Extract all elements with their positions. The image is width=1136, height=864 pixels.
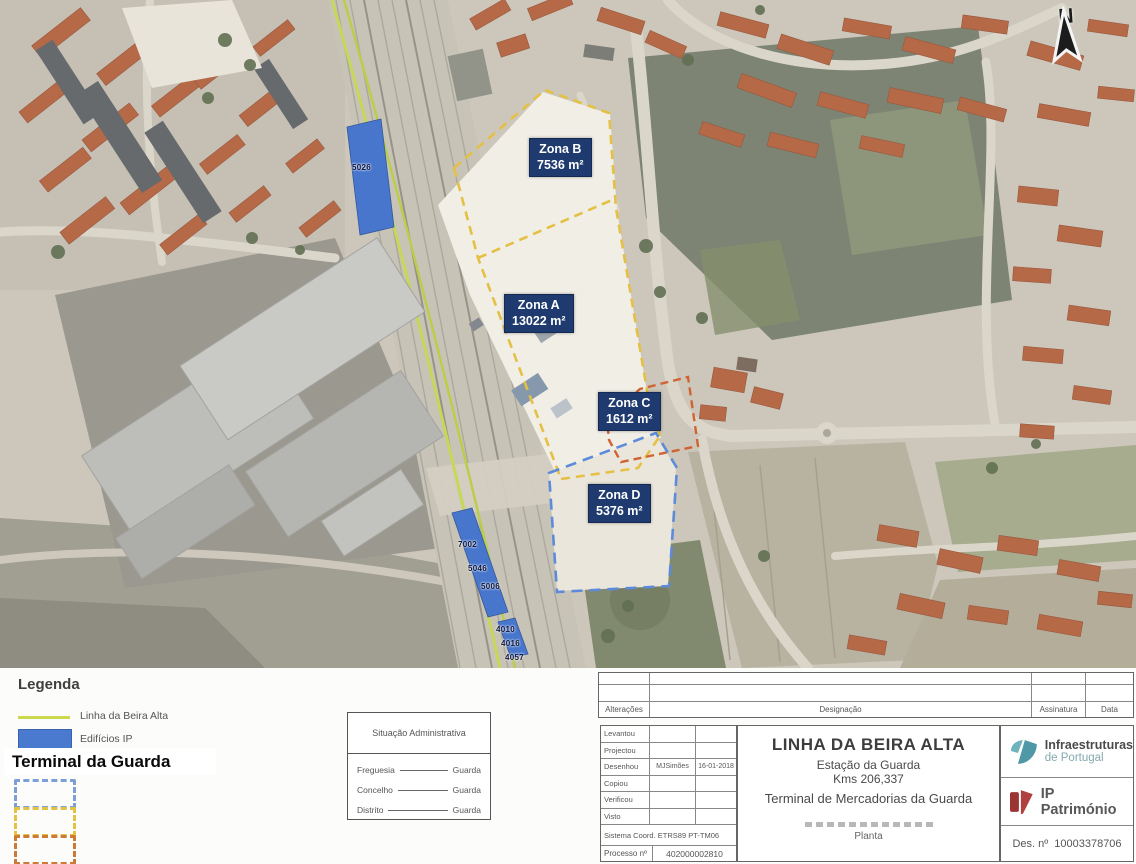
legend-item-buildings: Edifícios IP: [80, 733, 133, 745]
zone-name: Zona B: [537, 142, 584, 158]
credit-label: Projectou: [601, 743, 650, 759]
zone-label-c: Zona C 1612 m²: [598, 392, 661, 431]
credit-date: [696, 792, 736, 808]
credit-date: [696, 776, 736, 792]
building-label: 4010: [496, 625, 515, 634]
credit-label: Visto: [601, 809, 650, 825]
revision-col-designacao: Designação: [649, 702, 1031, 717]
zone-area: 13022 m²: [512, 314, 566, 330]
subtitle-station: Estação da Guarda: [738, 758, 999, 772]
infraestruturas-logo-icon: [1009, 738, 1039, 766]
admin-label: Concelho: [357, 785, 393, 795]
leader-line: [400, 770, 448, 771]
credit-label: Verificou: [601, 792, 650, 808]
admin-row-concelho: Concelho Guarda: [357, 780, 481, 800]
process-value: 402000002810: [653, 846, 736, 861]
main-title: LINHA DA BEIRA ALTA: [738, 735, 999, 755]
admin-value: Guarda: [453, 765, 481, 775]
zone-area: 7536 m²: [537, 158, 584, 174]
north-arrow-icon: [1043, 5, 1087, 68]
zone-area: 5376 m²: [596, 504, 643, 520]
patrimonio-logo-row: IP Património: [1001, 778, 1133, 826]
zone-label-a: Zona A 13022 m²: [504, 294, 574, 333]
credits-table: Levantou Projectou Desenhou MJSimões 16-…: [600, 725, 737, 862]
admin-value: Guarda: [453, 805, 481, 815]
terminal-title: Terminal da Guarda: [4, 748, 216, 772]
credit-date: [696, 743, 736, 759]
admin-status-box: Situação Administrativa Freguesia Guarda…: [347, 712, 491, 820]
north-arrow: N: [1043, 4, 1088, 28]
process-label: Processo nº: [601, 846, 653, 861]
admin-row-distrito: Distrito Guarda: [357, 800, 481, 820]
leader-line: [398, 790, 448, 791]
building-label: 4016: [501, 639, 520, 648]
patrimonio-logo-icon: [1009, 789, 1035, 815]
credit-label: Levantou: [601, 726, 650, 742]
building-label: 5046: [468, 564, 487, 573]
beira-alta-line-swatch: [18, 716, 70, 719]
zones-ab-swatch: [14, 807, 76, 837]
patrimonio-text: IP Património: [1041, 786, 1133, 818]
drawing-number-label: Des. nº: [1012, 838, 1048, 850]
infraestruturas-text: Infraestruturas: [1045, 739, 1133, 752]
crossed-out-text: [805, 822, 933, 827]
drawing-number-row: Des. nº 10003378706: [1001, 826, 1133, 861]
credit-name: [650, 776, 696, 792]
admin-label: Distrito: [357, 805, 383, 815]
drawing-sheet: Zona B 7536 m² Zona A 13022 m² Zona C 16…: [0, 0, 1136, 864]
process-number-row: Processo nº 402000002810: [601, 846, 736, 861]
zone-name: Zona C: [606, 396, 653, 412]
admin-row-freguesia: Freguesia Guarda: [357, 760, 481, 780]
building-label: 4057: [505, 653, 524, 662]
credit-date: [696, 809, 736, 825]
zone-label-d: Zona D 5376 m²: [588, 484, 651, 523]
zone-name: Zona A: [512, 298, 566, 314]
credit-name: [650, 809, 696, 825]
zone-c-swatch: [14, 835, 76, 864]
subtitle-kms: Kms 206,337: [738, 772, 999, 786]
leader-line: [388, 810, 447, 811]
admin-box-title: Situação Administrativa: [348, 713, 490, 754]
zone-area: 1612 m²: [606, 412, 653, 428]
building-label: 7002: [458, 540, 477, 549]
zone-name: Zona D: [596, 488, 643, 504]
sheet-footer: Legenda Linha da Beira Alta Edifícios IP…: [0, 668, 1136, 864]
credit-name: [650, 726, 696, 742]
credits-row: Visto: [601, 809, 736, 826]
terminal-title-box: Terminal da Guarda: [4, 748, 216, 775]
building-label: 5026: [352, 163, 371, 172]
coord-system: Sistema Coord. ETRS89 PT-TM06: [601, 825, 736, 846]
subtitle-terminal: Terminal de Mercadorias da Guarda: [738, 791, 999, 806]
credit-date: [696, 726, 736, 742]
infraestruturas-logo-row: Infraestruturas de Portugal: [1001, 726, 1133, 778]
revision-table: Alterações Designação Assinatura Data: [598, 672, 1134, 718]
credit-label: Copiou: [601, 776, 650, 792]
document-type: Planta: [738, 831, 999, 842]
credits-row: Verificou: [601, 792, 736, 809]
zone-label-b: Zona B 7536 m²: [529, 138, 592, 177]
credits-row: Projectou: [601, 743, 736, 760]
drawing-number-value: 10003378706: [1054, 838, 1121, 850]
zone-d-swatch: [14, 779, 76, 809]
credits-row: Desenhou MJSimões 16-01-2018: [601, 759, 736, 776]
title-panel: LINHA DA BEIRA ALTA Estação da Guarda Km…: [737, 725, 1000, 862]
credits-row: Levantou: [601, 726, 736, 743]
revision-col-alteracoes: Alterações: [599, 702, 649, 717]
admin-label: Freguesia: [357, 765, 395, 775]
legend-title: Legenda: [18, 676, 80, 693]
building-label: 5006: [481, 582, 500, 591]
legend-item-line: Linha da Beira Alta: [80, 710, 168, 722]
credit-name: [650, 792, 696, 808]
aerial-photo: [0, 0, 1136, 668]
revision-col-assinatura: Assinatura: [1031, 702, 1085, 717]
revision-col-data: Data: [1085, 702, 1133, 717]
logos-panel: Infraestruturas de Portugal IP Patrimóni…: [1000, 725, 1134, 862]
credit-date: 16-01-2018: [696, 759, 736, 775]
de-portugal-text: de Portugal: [1045, 752, 1133, 764]
credit-label: Desenhou: [601, 759, 650, 775]
credits-row: Copiou: [601, 776, 736, 793]
admin-value: Guarda: [453, 785, 481, 795]
ip-buildings-swatch: [18, 729, 72, 749]
aerial-map: Zona B 7536 m² Zona A 13022 m² Zona C 16…: [0, 0, 1136, 668]
credit-name: MJSimões: [650, 759, 696, 775]
credit-name: [650, 743, 696, 759]
